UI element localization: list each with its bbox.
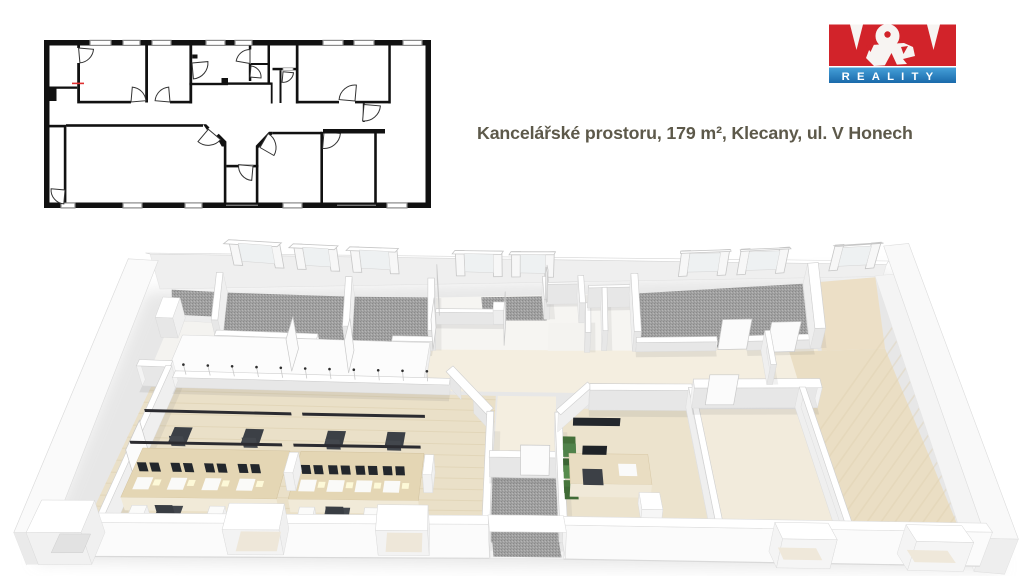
svg-text:Kancelářské prostoru, 179 m²,: Kancelářské prostoru, 179 m², Klecany, u… bbox=[477, 123, 913, 143]
svg-text:REALITY: REALITY bbox=[842, 71, 941, 83]
